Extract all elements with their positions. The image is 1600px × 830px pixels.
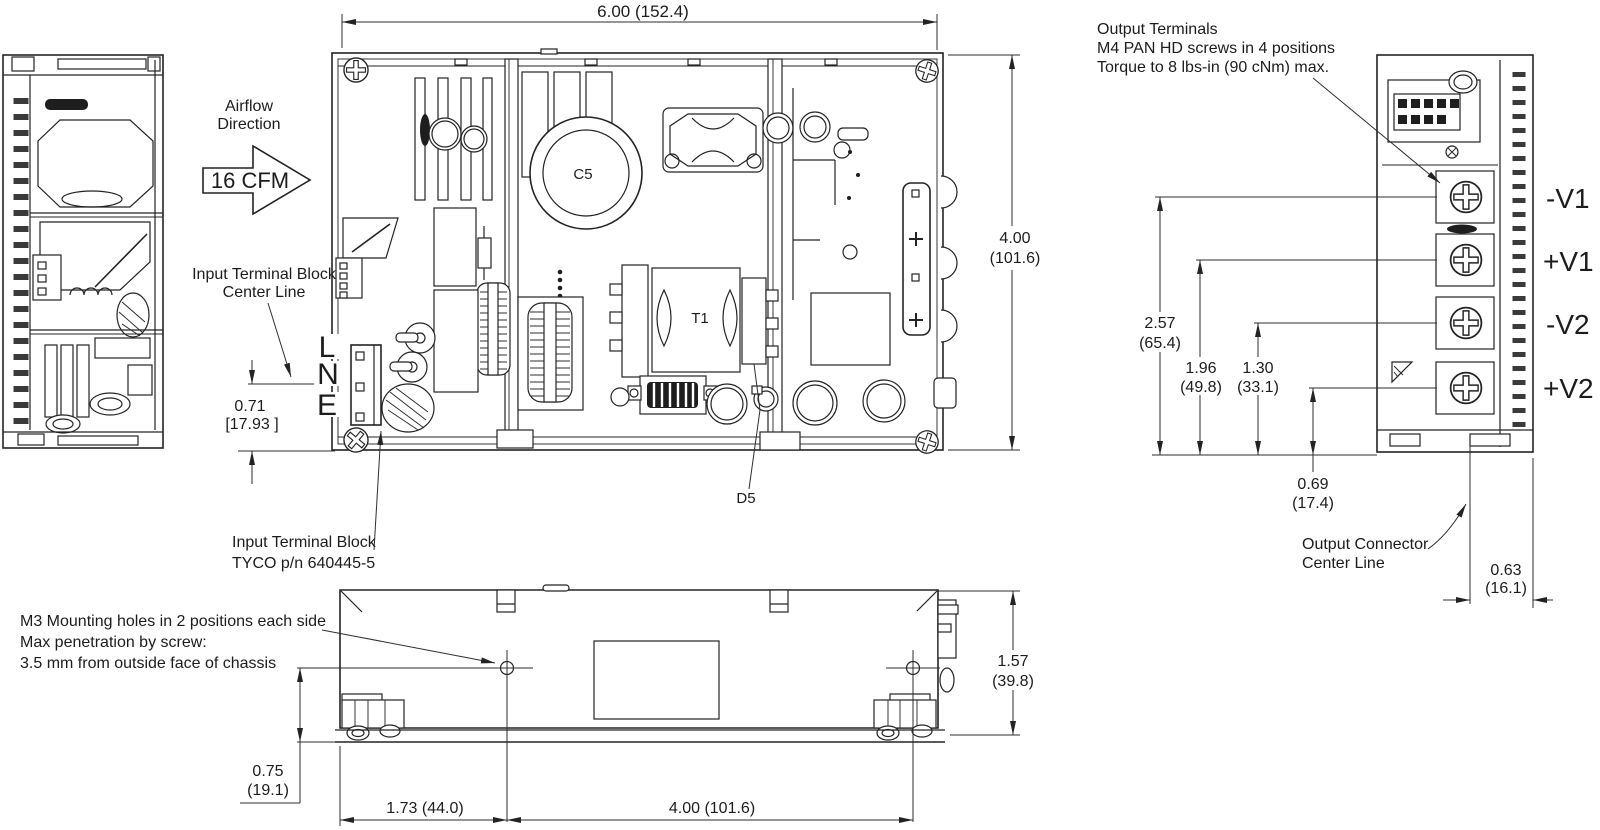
dim-itb-offset-mm: [17.93 ] — [225, 416, 278, 433]
mechanical-drawing: 6.00 (152.4) Airflow Direction 16 CFM In… — [0, 0, 1600, 830]
phillips-screw-icon — [339, 423, 373, 457]
right-side-view — [1377, 55, 1533, 452]
dim-itb-offset-in: 0.71 — [234, 398, 265, 415]
dim-hole-offset-in: 0.75 — [252, 763, 283, 780]
output-terminals-note-3: Torque to 8 lbs-in (90 cNm) max. — [1097, 59, 1329, 76]
input-label-e: E — [317, 389, 337, 422]
output-terminals-note-2: M4 PAN HD screws in 4 positions — [1097, 40, 1335, 57]
terminal-screw-icon — [1451, 373, 1482, 404]
terminal-screw-icon — [1451, 308, 1482, 339]
dim-hole-x1: 1.73 (44.0) — [386, 800, 463, 817]
component-c5: C5 — [573, 166, 592, 183]
output-connector-note-1: Output Connector — [1302, 536, 1429, 553]
label-area — [594, 641, 719, 719]
dim-term4-in: 0.69 — [1297, 476, 1328, 493]
tyco-note-1: Input Terminal Block — [232, 534, 377, 551]
terminal-label-neg-v2: -V2 — [1546, 309, 1590, 340]
tyco-note-2: TYCO p/n 640445-5 — [232, 555, 375, 572]
itb-centerline-2: Center Line — [223, 284, 306, 301]
component-t1: T1 — [691, 310, 709, 327]
dim-depth-mm: (101.6) — [990, 250, 1041, 267]
dim-hole-offset-mm: (19.1) — [247, 782, 289, 799]
dim-outconn-in: 0.63 — [1490, 562, 1521, 579]
component-d5: D5 — [736, 490, 755, 507]
terminal-screw-icon — [1451, 245, 1482, 276]
dim-height-in: 1.57 — [997, 653, 1028, 670]
dim-term2-mm: (49.8) — [1180, 379, 1222, 396]
m3-note-1: M3 Mounting holes in 2 positions each si… — [20, 613, 326, 630]
terminal-label-pos-v1: +V1 — [1543, 246, 1594, 277]
top-view — [332, 49, 957, 457]
output-terminals-note-1: Output Terminals — [1097, 21, 1218, 38]
m3-note-3: 3.5 mm from outside face of chassis — [20, 655, 276, 672]
itb-centerline-1: Input Terminal Block — [192, 266, 337, 283]
terminal-screw-icon — [1451, 182, 1482, 213]
bottom-view — [335, 585, 958, 742]
dim-hole-span: 4.00 (101.6) — [669, 800, 755, 817]
airflow-label-2: Direction — [217, 116, 280, 133]
input-label-n: N — [317, 358, 339, 391]
terminal-label-pos-v2: +V2 — [1543, 373, 1594, 404]
airflow-cfm: 16 CFM — [211, 168, 289, 193]
dim-depth-in: 4.00 — [999, 230, 1030, 247]
output-connector-note-2: Center Line — [1302, 555, 1385, 572]
left-side-view — [3, 55, 163, 448]
dim-term1-in: 2.57 — [1144, 315, 1175, 332]
fan-outline — [38, 99, 153, 207]
output-busbar — [903, 183, 930, 335]
dim-term4-mm: (17.4) — [1292, 495, 1334, 512]
dim-outconn-mm: (16.1) — [1485, 580, 1527, 597]
input-terminal-block — [351, 345, 381, 425]
dim-term2-in: 1.96 — [1185, 360, 1216, 377]
mounting-foot — [342, 694, 404, 740]
dim-overall-width: 6.00 (152.4) — [597, 2, 689, 21]
airflow-label-1: Airflow — [225, 98, 273, 115]
dim-term3-in: 1.30 — [1242, 360, 1273, 377]
dim-term1-mm: (65.4) — [1139, 335, 1181, 352]
m3-note-2: Max penetration by screw: — [20, 634, 207, 651]
dim-height-mm: (39.8) — [992, 673, 1034, 690]
phillips-screw-icon — [344, 58, 368, 82]
terminal-label-neg-v1: -V1 — [1546, 183, 1590, 214]
mounting-foot — [874, 694, 936, 740]
dim-term3-mm: (33.1) — [1237, 379, 1279, 396]
inductor-outline — [663, 108, 763, 172]
